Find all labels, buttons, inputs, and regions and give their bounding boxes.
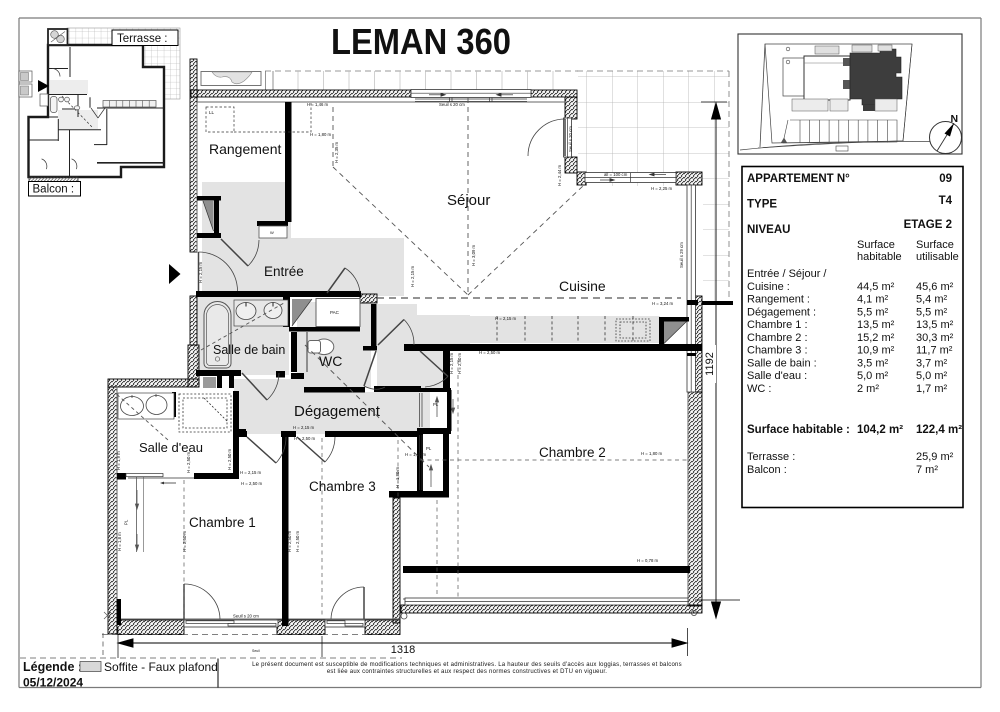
svg-text:H = 2,15 m: H = 2,15 m — [293, 425, 315, 430]
svg-text:Cuisine :: Cuisine : — [747, 281, 790, 293]
svg-text:13,5 m²: 13,5 m² — [916, 319, 954, 331]
svg-text:7 m²: 7 m² — [916, 464, 938, 476]
svg-text:1318: 1318 — [391, 644, 415, 656]
svg-text:5,5 m²: 5,5 m² — [857, 306, 889, 318]
svg-text:Chambre 3 :: Chambre 3 : — [747, 345, 808, 357]
svg-text:44,5 m²: 44,5 m² — [857, 281, 895, 293]
svg-text:TYPE: TYPE — [747, 199, 777, 211]
svg-text:Le présent document est suscep: Le présent document est susceptible de m… — [252, 662, 682, 668]
svg-text:PL: PL — [433, 402, 439, 407]
svg-text:Chambre 2 :: Chambre 2 : — [747, 332, 808, 344]
svg-text:utilisable: utilisable — [916, 251, 959, 263]
svg-text:5,5 m²: 5,5 m² — [916, 306, 948, 318]
svg-text:Cuisine: Cuisine — [559, 278, 606, 294]
svg-text:Surface: Surface — [857, 239, 895, 251]
svg-text:Seuil s 20 cm: Seuil s 20 cm — [439, 102, 465, 107]
svg-text:H = 2,44 m: H = 2,44 m — [557, 164, 562, 186]
svg-text:N: N — [951, 113, 959, 125]
svg-text:Seuil: Seuil — [252, 649, 260, 653]
svg-text:H = 2,50 m: H = 2,50 m — [182, 530, 187, 552]
svg-text:WC: WC — [319, 353, 342, 369]
svg-text:H = 2,50 m: H = 2,50 m — [241, 481, 263, 486]
svg-text:habitable: habitable — [857, 251, 902, 263]
svg-text:Chambre 3: Chambre 3 — [309, 479, 376, 494]
svg-text:H = 1,80 m: H = 1,80 m — [310, 132, 332, 137]
svg-text:3,7 m²: 3,7 m² — [916, 357, 948, 369]
svg-text:Entrée: Entrée — [264, 264, 304, 279]
svg-text:WC :: WC : — [747, 383, 771, 395]
svg-text:all = 100 cm: all = 100 cm — [604, 172, 628, 177]
svg-text:10,9 m²: 10,9 m² — [857, 345, 895, 357]
svg-text:H = 2,15 m: H = 2,15 m — [495, 316, 517, 321]
svg-text:Seuil s 29 cm: Seuil s 29 cm — [679, 242, 684, 268]
svg-text:2 m²: 2 m² — [857, 383, 879, 395]
svg-text:H = 2,50 m: H = 2,50 m — [186, 451, 191, 473]
svg-text:Chambre 2: Chambre 2 — [539, 445, 606, 460]
svg-text:Terrasse :: Terrasse : — [747, 451, 795, 463]
svg-text:PL: PL — [426, 446, 432, 451]
svg-text:122,4 m²: 122,4 m² — [916, 424, 962, 436]
svg-text:PAC: PAC — [330, 310, 340, 315]
svg-text:Dégagement :: Dégagement : — [747, 306, 816, 318]
svg-text:H = 2,35 m: H = 2,35 m — [334, 141, 339, 163]
svg-text:09: 09 — [939, 173, 952, 185]
svg-text:Dégagement: Dégagement — [294, 403, 381, 420]
svg-text:H = 1,80 m: H = 1,80 m — [641, 451, 663, 456]
svg-text:104,2 m²: 104,2 m² — [857, 424, 903, 436]
svg-text:H = 2,15 m: H = 2,15 m — [410, 265, 415, 287]
svg-text:15,2 m²: 15,2 m² — [857, 332, 895, 344]
svg-text:PL: PL — [124, 519, 129, 525]
svg-text:4,1 m²: 4,1 m² — [857, 294, 889, 306]
svg-text:W: W — [270, 230, 274, 235]
svg-text:H = 3,24 m: H = 3,24 m — [652, 301, 674, 306]
svg-text:Seuil s 20 cm: Seuil s 20 cm — [233, 614, 259, 619]
svg-text:5,0 m²: 5,0 m² — [916, 370, 948, 382]
svg-text:H = 0,78 m: H = 0,78 m — [637, 558, 659, 563]
svg-text:Balcon :: Balcon : — [747, 464, 787, 476]
svg-text:H = 2,15 m: H = 2,15 m — [240, 470, 262, 475]
svg-text:H = 1,8 m: H = 1,8 m — [117, 532, 122, 551]
svg-text:H = 2,50 m: H = 2,50 m — [295, 530, 300, 552]
svg-text:Balcon :: Balcon : — [33, 184, 75, 196]
svg-text:Seuil s 20 cm: Seuil s 20 cm — [568, 126, 573, 152]
svg-text:Salle de bain :: Salle de bain : — [747, 357, 817, 369]
svg-text:30,3 m²: 30,3 m² — [916, 332, 954, 344]
svg-text:LEMAN 360: LEMAN 360 — [331, 21, 511, 62]
svg-text:H = 1,80 m: H = 1,80 m — [395, 466, 400, 488]
svg-text:1192: 1192 — [704, 352, 716, 376]
svg-text:Surface: Surface — [916, 239, 954, 251]
svg-text:H = 2,50 m: H = 2,50 m — [294, 436, 316, 441]
svg-text:NIVEAU: NIVEAU — [747, 224, 790, 236]
svg-text:Salle d'eau: Salle d'eau — [139, 440, 203, 455]
svg-text:est liée aux contraintes struc: est liée aux contraintes structurelles e… — [327, 669, 607, 675]
svg-text:Rangement :: Rangement : — [747, 294, 810, 306]
svg-text:Salle de bain: Salle de bain — [213, 343, 285, 357]
svg-text:Légende :: Légende : — [23, 660, 82, 674]
svg-text:Chambre 1: Chambre 1 — [189, 515, 256, 530]
svg-text:13,5 m²: 13,5 m² — [857, 319, 895, 331]
svg-text:H = 1,80 m: H = 1,80 m — [405, 452, 427, 457]
svg-text:05/12/2024: 05/12/2024 — [23, 676, 83, 690]
svg-text:APPARTEMENT N°: APPARTEMENT N° — [747, 173, 850, 185]
svg-text:H = 2,50 m: H = 2,50 m — [287, 530, 292, 552]
svg-text:H = 2,50 m: H = 2,50 m — [479, 350, 501, 355]
svg-text:Terrasse :: Terrasse : — [117, 33, 168, 45]
svg-text:Séjour: Séjour — [447, 192, 490, 209]
svg-text:H = 2,50 m: H = 2,50 m — [227, 448, 232, 470]
svg-text:3,5 m²: 3,5 m² — [857, 357, 889, 369]
svg-text:5,0 m²: 5,0 m² — [857, 370, 889, 382]
svg-text:H = 3,09 m: H = 3,09 m — [471, 244, 476, 266]
svg-text:1,7 m²: 1,7 m² — [916, 383, 948, 395]
svg-text:T4: T4 — [939, 195, 953, 207]
svg-text:LL: LL — [209, 110, 215, 115]
svg-text:Surface habitable :: Surface habitable : — [747, 424, 850, 436]
svg-text:ETAGE 2: ETAGE 2 — [904, 219, 952, 231]
svg-text:11,7 m²: 11,7 m² — [916, 345, 953, 357]
svg-text:H = 2,15 m: H = 2,15 m — [198, 261, 203, 283]
svg-text:H = 2,50 m: H = 2,50 m — [457, 352, 462, 374]
svg-text:Chambre 1 :: Chambre 1 : — [747, 319, 808, 331]
svg-text:45,6 m²: 45,6 m² — [916, 281, 954, 293]
svg-text:H = 2,25 m: H = 2,25 m — [651, 186, 673, 191]
svg-text:Soffite - Faux plafond: Soffite - Faux plafond — [104, 660, 218, 674]
svg-text:Salle d'eau :: Salle d'eau : — [747, 370, 807, 382]
svg-text:Rangement: Rangement — [209, 141, 281, 157]
svg-text:H = 1,46 m: H = 1,46 m — [307, 102, 329, 107]
svg-text:5,4 m²: 5,4 m² — [916, 294, 948, 306]
svg-text:25,9 m²: 25,9 m² — [916, 451, 954, 463]
svg-text:H = 1,9 m: H = 1,9 m — [116, 451, 121, 470]
svg-text:H = 2,15 m: H = 2,15 m — [449, 352, 454, 374]
svg-text:Entrée / Séjour /: Entrée / Séjour / — [747, 268, 827, 280]
